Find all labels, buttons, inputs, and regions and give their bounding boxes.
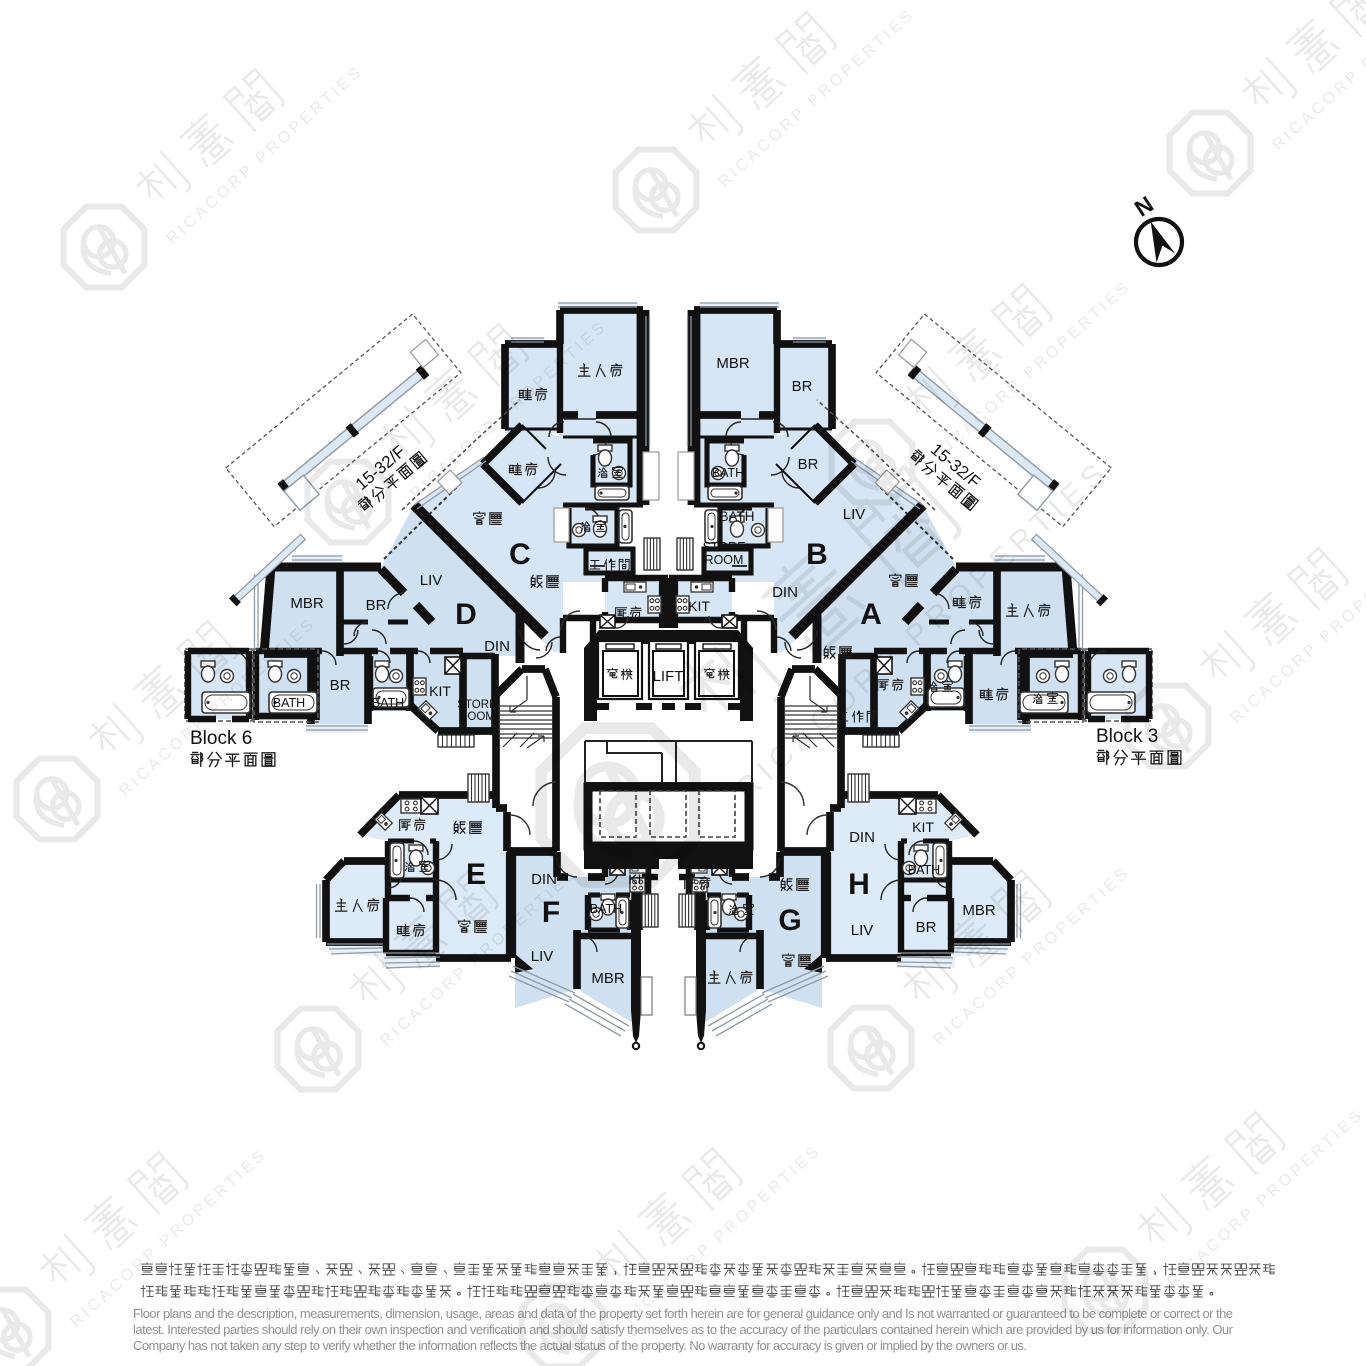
svg-text:BR: BR	[792, 378, 813, 395]
svg-text:MBR: MBR	[716, 355, 750, 372]
svg-text:KIT: KIT	[912, 819, 934, 835]
svg-text:LIV: LIV	[531, 948, 554, 965]
svg-text:BR: BR	[798, 456, 819, 473]
svg-text:LIV: LIV	[851, 922, 874, 939]
svg-text:LIFT: LIFT	[653, 668, 684, 685]
svg-text:BATH: BATH	[719, 509, 754, 524]
svg-text:BATH: BATH	[712, 466, 744, 480]
svg-text:KIT: KIT	[429, 683, 451, 699]
svg-text:ROOM: ROOM	[459, 711, 495, 723]
svg-text:BATH: BATH	[372, 696, 404, 710]
svg-text:BR: BR	[366, 597, 387, 614]
svg-text:BR: BR	[330, 677, 351, 694]
svg-text:KIT: KIT	[688, 598, 710, 614]
svg-text:MBR: MBR	[290, 595, 324, 612]
svg-text:MBR: MBR	[962, 902, 996, 919]
svg-text:STORE: STORE	[703, 540, 746, 554]
svg-text:D: D	[455, 598, 477, 631]
svg-text:DIN: DIN	[484, 638, 510, 655]
svg-text:H: H	[848, 868, 870, 901]
svg-text:LIV: LIV	[420, 572, 443, 589]
svg-text:BATH: BATH	[273, 696, 305, 710]
svg-text:A: A	[860, 598, 882, 631]
svg-text:BR: BR	[916, 919, 937, 936]
svg-text:ROOM: ROOM	[705, 553, 744, 567]
svg-text:BATH: BATH	[590, 902, 622, 916]
svg-text:MBR: MBR	[591, 970, 625, 987]
svg-text:DIN: DIN	[849, 829, 875, 846]
svg-text:G: G	[778, 904, 801, 937]
svg-text:latest. Interested parties sho: latest. Interested parties should rely o…	[133, 1322, 1234, 1337]
svg-text:C: C	[509, 538, 531, 571]
svg-text:STORE: STORE	[457, 699, 497, 711]
svg-text:BATH: BATH	[908, 863, 940, 877]
